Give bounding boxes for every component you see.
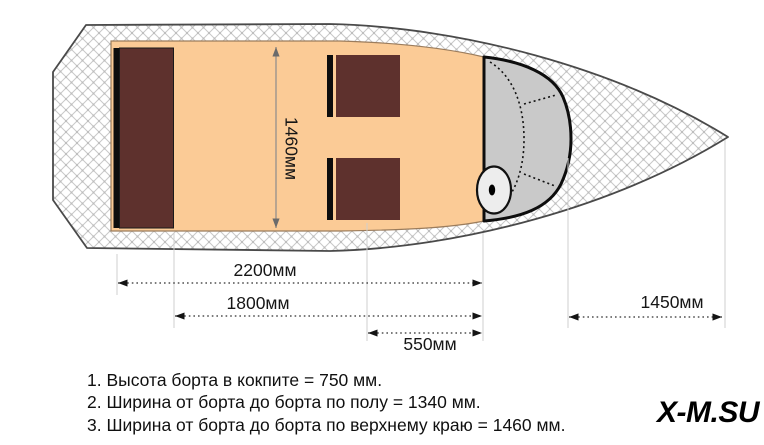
bottom-seat-backrest-strip — [327, 158, 333, 220]
stern-bench-seat — [120, 48, 174, 228]
boat-dimension-diagram: 2200мм 1800мм 550мм 1450мм 1460мм 1. Выс… — [0, 0, 764, 445]
notes-list: 1. Высота борта в кокпите = 750 мм. 2. Ш… — [87, 369, 707, 436]
dimension-label-1800: 1800мм — [196, 294, 320, 312]
top-seat-backrest-strip — [327, 55, 333, 117]
watermark-logo: X-M.SU — [625, 396, 759, 430]
top-seat — [336, 55, 400, 117]
dimension-label-1460: 1460мм — [282, 100, 300, 196]
bottom-seat — [336, 158, 400, 220]
dimension-label-550: 550мм — [378, 335, 482, 353]
note-line-1: 1. Высота борта в кокпите = 750 мм. — [87, 369, 707, 391]
steering-wheel-hub — [489, 185, 495, 196]
dimension-label-2200: 2200мм — [203, 261, 327, 279]
dimension-label-1450: 1450мм — [616, 293, 728, 311]
note-line-3: 3. Ширина от борта до борта по верхнему … — [87, 414, 707, 436]
bench-backrest-strip — [114, 48, 120, 228]
note-line-2: 2. Ширина от борта до борта по полу = 13… — [87, 391, 707, 413]
